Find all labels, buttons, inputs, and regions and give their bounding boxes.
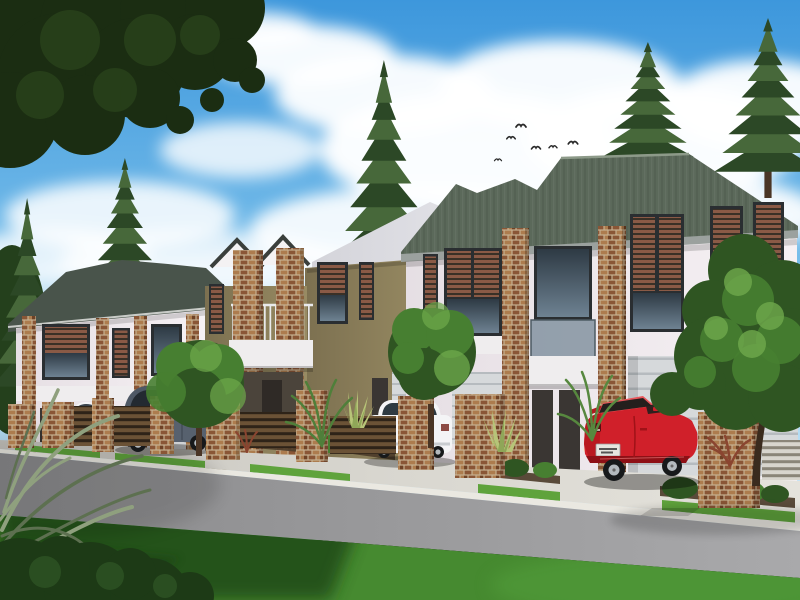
slat-panel — [240, 412, 298, 448]
window-middle-left — [209, 284, 224, 334]
townhouse-render-image: Artist render: street view of a row of n… — [0, 0, 800, 600]
balcony-center-bay — [528, 246, 598, 389]
slat-panel — [330, 416, 396, 454]
fence-pillar — [455, 394, 505, 478]
slat-panel-light — [762, 440, 800, 480]
windows-middle-right — [317, 262, 374, 324]
scene: Artist render: street view of a row of n… — [0, 0, 800, 600]
